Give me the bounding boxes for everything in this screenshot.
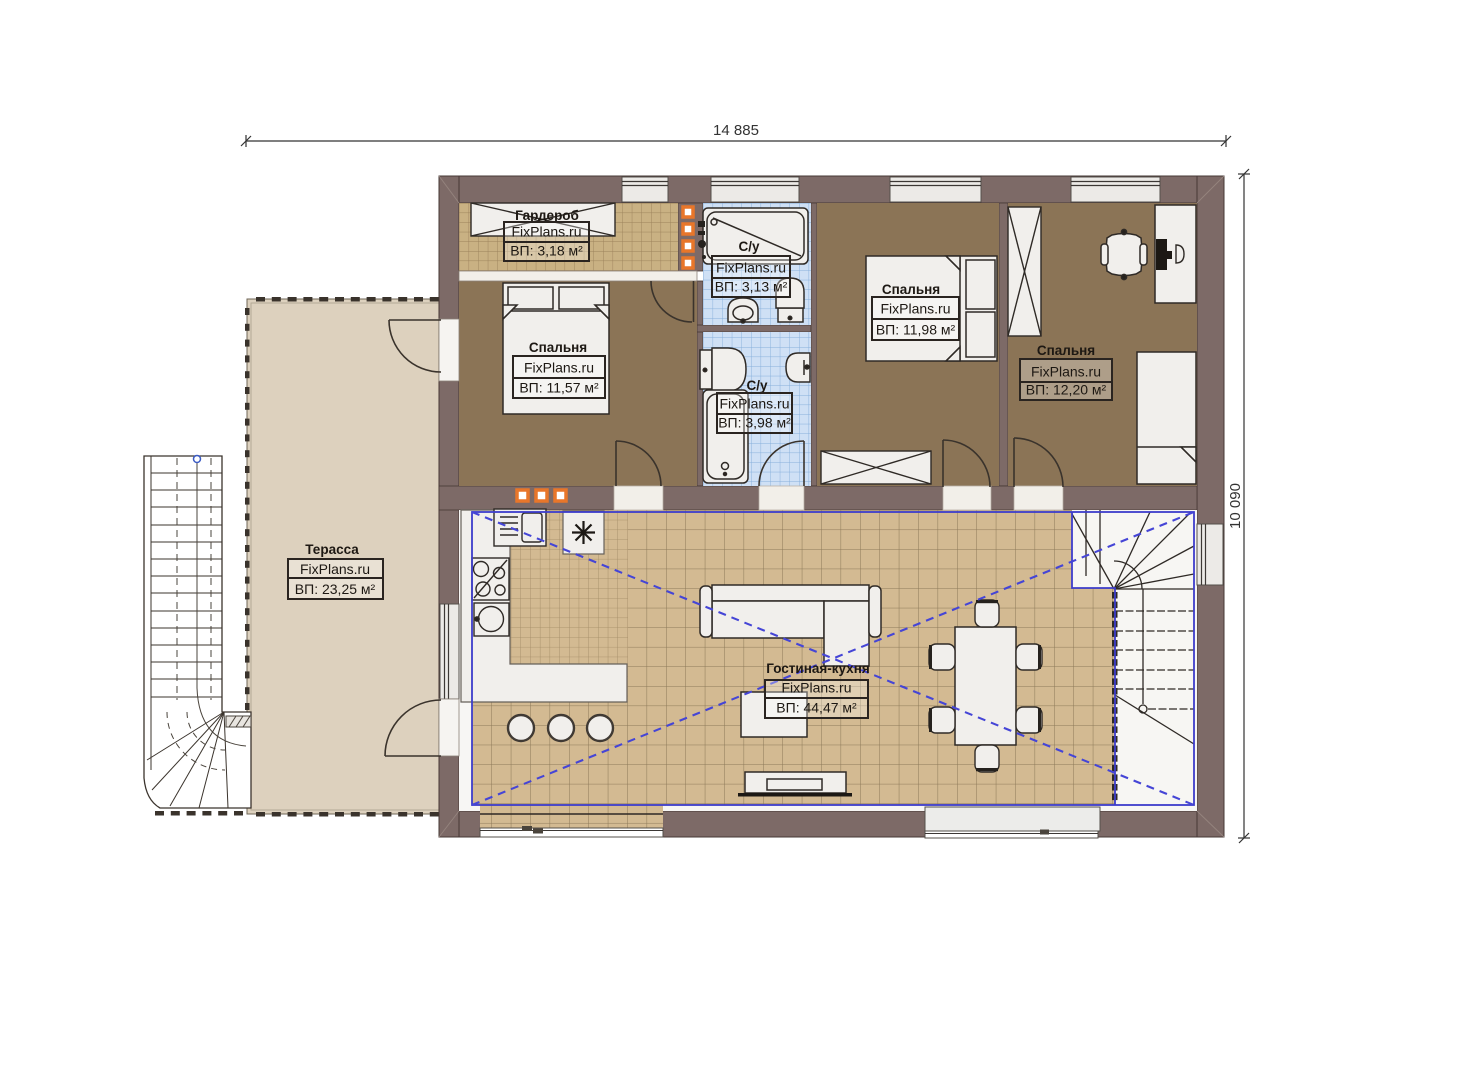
- svg-text:FixPlans.ru: FixPlans.ru: [1031, 364, 1101, 380]
- svg-text:FixPlans.ru: FixPlans.ru: [880, 301, 950, 317]
- svg-text:Спальня: Спальня: [882, 282, 940, 297]
- svg-text:ВП: 44,47 м²: ВП: 44,47 м²: [776, 700, 857, 716]
- svg-text:FixPlans.ru: FixPlans.ru: [300, 561, 370, 577]
- svg-text:Гостиная-кухня: Гостиная-кухня: [766, 661, 869, 676]
- svg-text:Спальня: Спальня: [1037, 343, 1095, 358]
- svg-text:FixPlans.ru: FixPlans.ru: [781, 680, 851, 696]
- svg-text:ВП: 11,57 м²: ВП: 11,57 м²: [519, 380, 599, 396]
- svg-text:С/у: С/у: [746, 378, 768, 393]
- svg-text:ВП: 3,13 м²: ВП: 3,13 м²: [715, 279, 788, 295]
- svg-text:FixPlans.ru: FixPlans.ru: [716, 260, 786, 276]
- svg-text:ВП: 11,98 м²: ВП: 11,98 м²: [876, 322, 956, 338]
- svg-text:С/у: С/у: [738, 239, 760, 254]
- svg-text:FixPlans.ru: FixPlans.ru: [511, 224, 581, 240]
- svg-text:ВП: 23,25 м²: ВП: 23,25 м²: [295, 581, 376, 597]
- svg-text:Гардероб: Гардероб: [515, 208, 579, 223]
- svg-text:14 885: 14 885: [713, 122, 759, 139]
- svg-text:10 090: 10 090: [1227, 483, 1244, 529]
- svg-text:Терасса: Терасса: [305, 542, 359, 557]
- svg-text:FixPlans.ru: FixPlans.ru: [719, 396, 789, 412]
- svg-text:ВП: 12,20 м²: ВП: 12,20 м²: [1026, 382, 1107, 398]
- svg-text:ВП: 3,98 м²: ВП: 3,98 м²: [718, 415, 791, 431]
- svg-text:ВП: 3,18 м²: ВП: 3,18 м²: [510, 243, 583, 259]
- svg-text:FixPlans.ru: FixPlans.ru: [524, 360, 594, 376]
- svg-text:Спальня: Спальня: [529, 340, 587, 355]
